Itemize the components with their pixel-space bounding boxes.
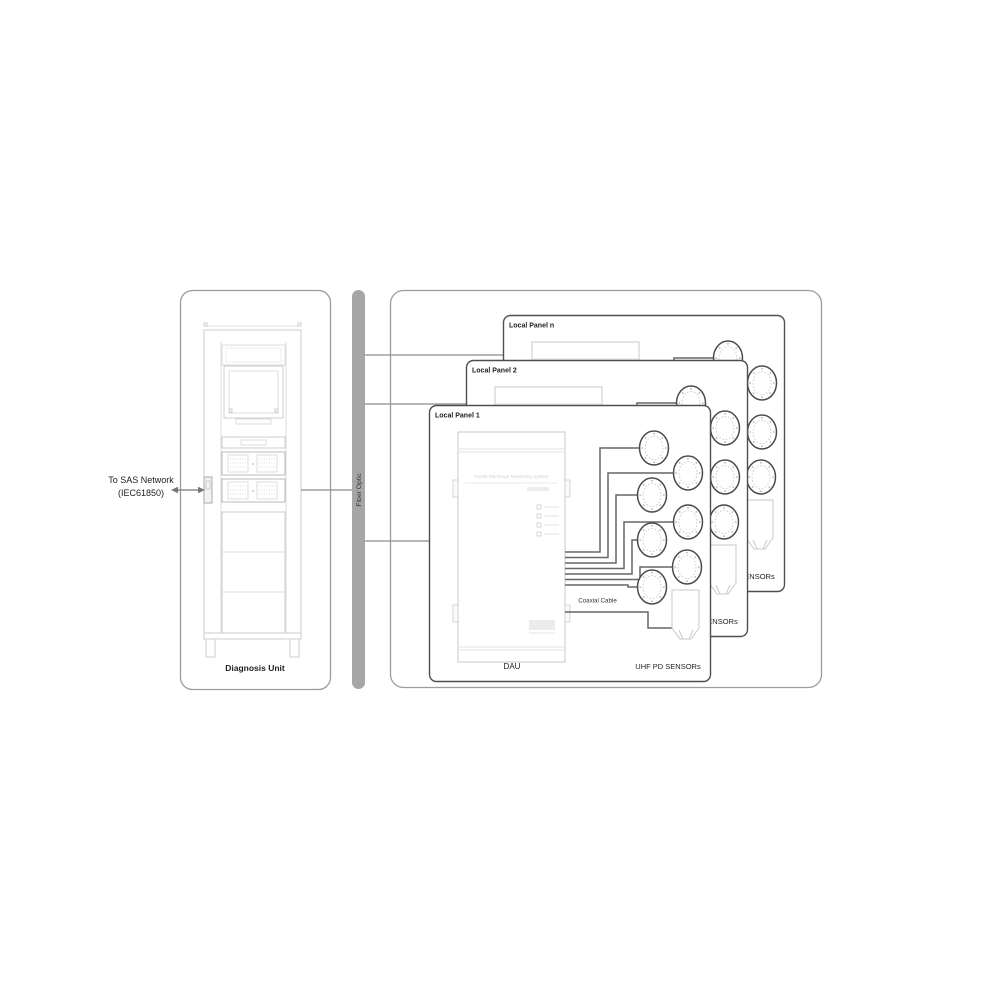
local-panel-1: Local Panel 1: [430, 406, 711, 682]
arrowhead-left-icon: [171, 487, 178, 493]
local-panels-group: Local Panel n Local Panel 2 Local Panel …: [391, 291, 822, 688]
fiber-optic-label: Fiber Optic: [356, 473, 363, 507]
panel-1-title: Local Panel 1: [435, 413, 480, 420]
sas-network-label-line2: (IEC61850): [118, 488, 164, 498]
fiber-optic-bus: Fiber Optic: [352, 290, 365, 689]
system-diagram: Partial Discharge Monitoring System: [0, 0, 1000, 1000]
diagnosis-unit-label: Diagnosis Unit: [225, 663, 285, 673]
panel-2-title: Local Panel 2: [472, 368, 517, 375]
panel-n-title: Local Panel n: [509, 323, 554, 330]
diagram-svg: Partial Discharge Monitoring System: [0, 0, 1000, 1000]
sas-network-label-line1: To SAS Network: [108, 475, 174, 485]
